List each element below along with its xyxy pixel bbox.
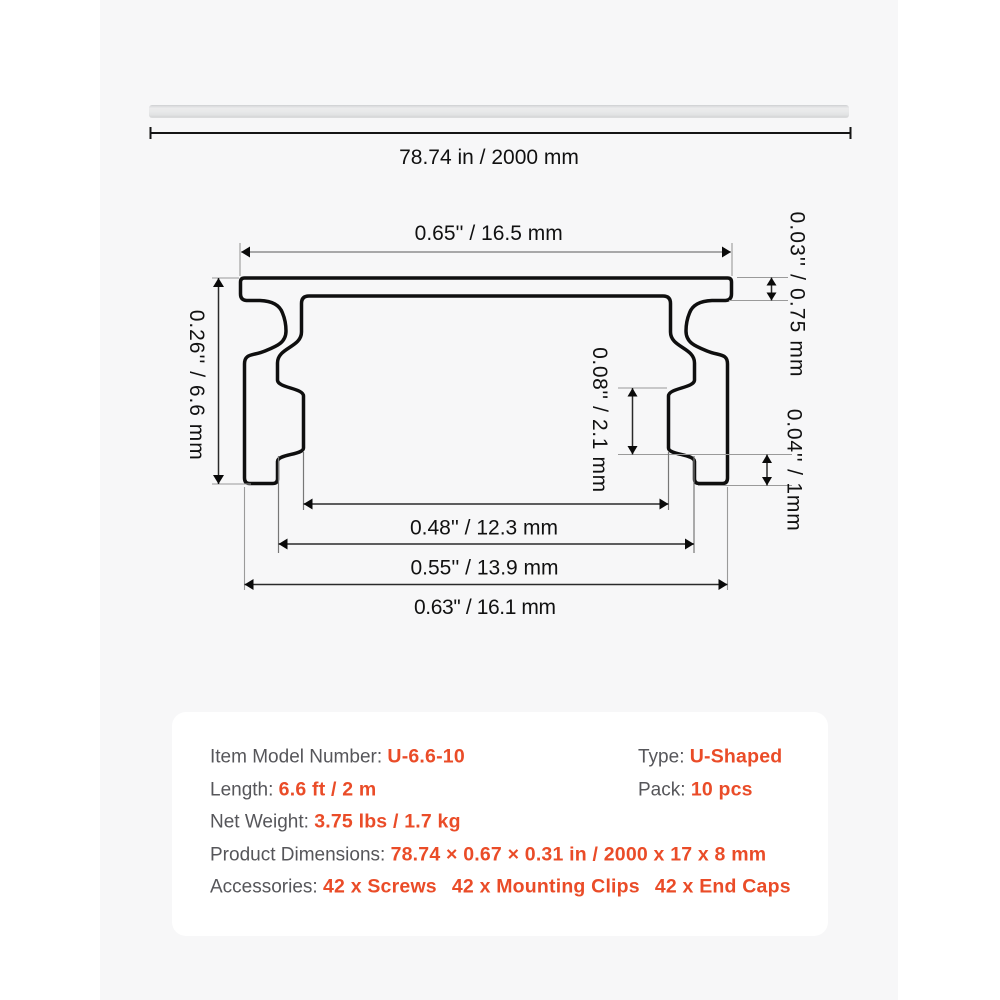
svg-text:0.63'' / 16.1 mm: 0.63'' / 16.1 mm xyxy=(414,596,556,619)
svg-text:0.48'' / 12.3 mm: 0.48'' / 12.3 mm xyxy=(410,517,558,540)
svg-text:78.74 in / 2000 mm: 78.74 in / 2000 mm xyxy=(399,146,579,169)
svg-text:0.65'' / 16.5 mm: 0.65'' / 16.5 mm xyxy=(415,222,563,245)
svg-text:0.55'' / 13.9 mm: 0.55'' / 13.9 mm xyxy=(410,557,558,580)
svg-text:0.03'' / 0.75 mm: 0.03'' / 0.75 mm xyxy=(786,212,809,377)
svg-text:0.26'' / 6.6 mm: 0.26'' / 6.6 mm xyxy=(185,310,208,460)
svg-text:0.04'' / 1mm: 0.04'' / 1mm xyxy=(782,409,805,531)
svg-text:0.08'' / 2.1 mm: 0.08'' / 2.1 mm xyxy=(588,347,611,492)
